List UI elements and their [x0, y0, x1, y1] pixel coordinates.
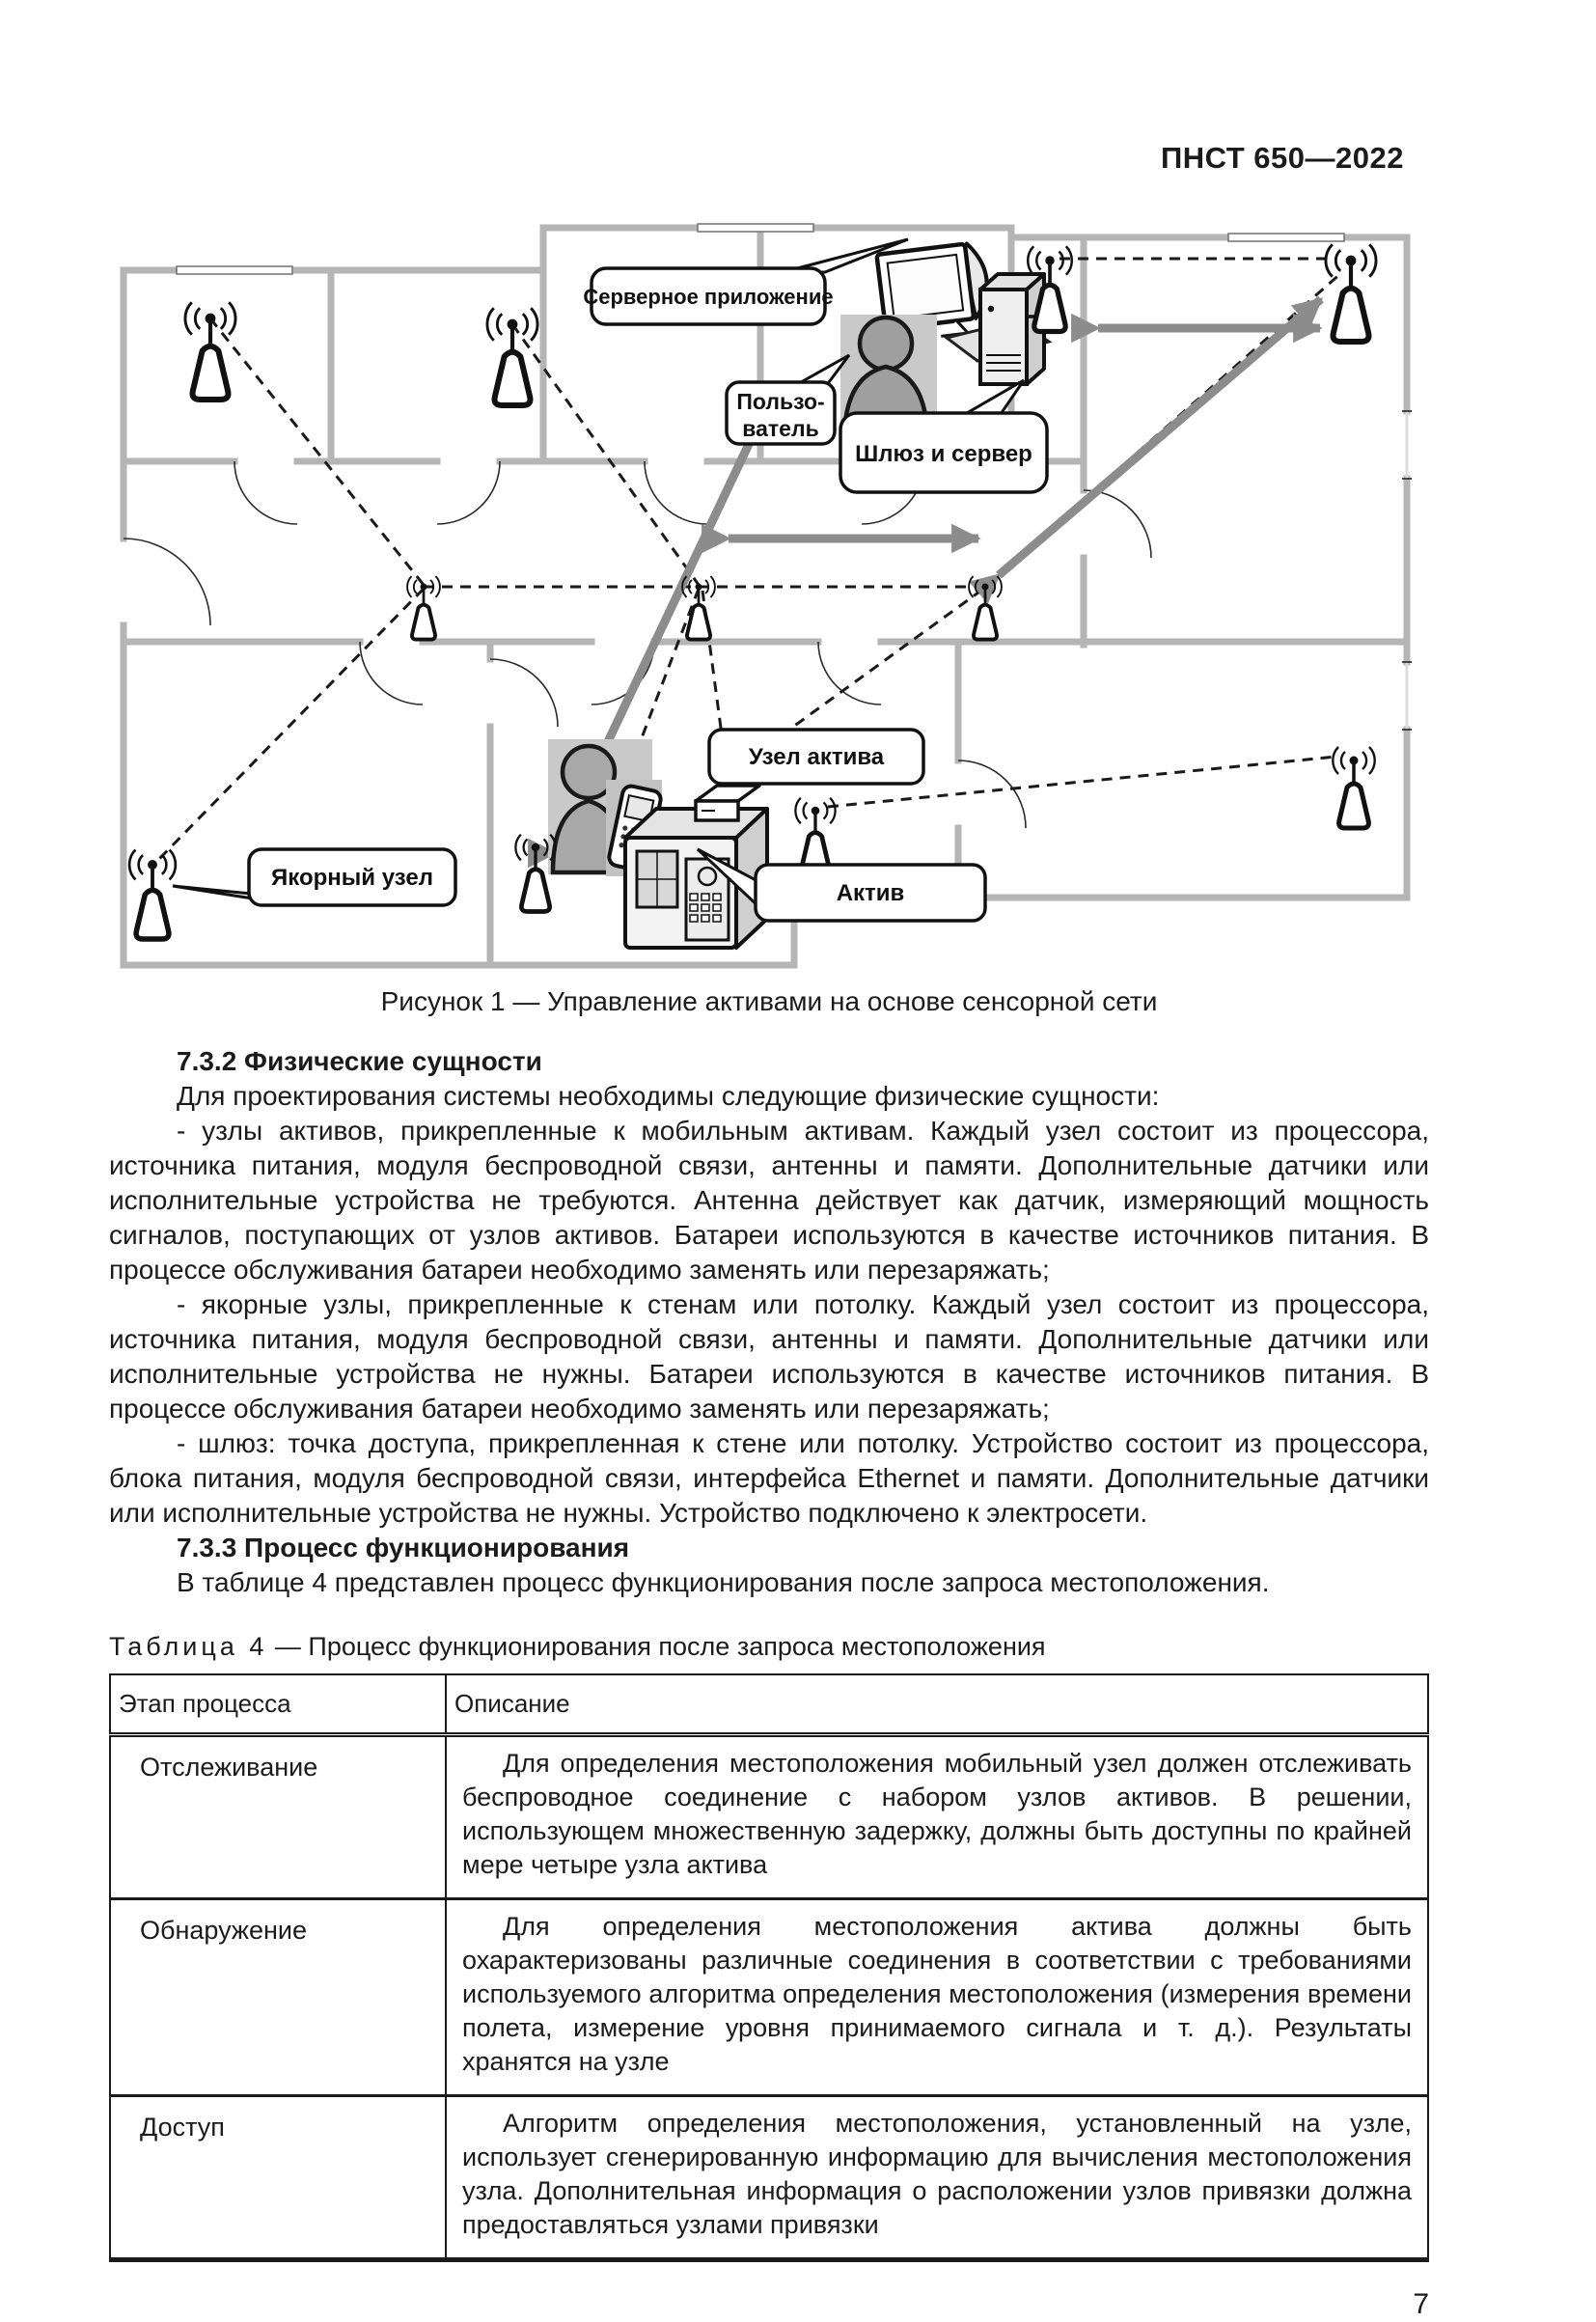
callout-label: Якорный узел: [271, 865, 433, 891]
paragraph: - шлюз: точка доступа, прикрепленная к с…: [109, 1426, 1429, 1531]
anchor-node-icon: [407, 576, 440, 640]
table-caption-label: Таблица 4: [109, 1632, 267, 1661]
table-row: Доступ Алгоритм определения местоположен…: [110, 2096, 1428, 2260]
callout-label: Узел актива: [749, 744, 885, 770]
paragraph: Для проектирования системы необходимы сл…: [109, 1079, 1429, 1114]
callout-label: ватель: [742, 416, 818, 441]
description-cell: Для определения местоположения мобильный…: [446, 1735, 1428, 1899]
page-number: 7: [109, 2287, 1429, 2322]
paragraph: - якорные узлы, прикрепленные к стенам и…: [109, 1287, 1429, 1426]
column-header-description: Описание: [446, 1674, 1428, 1735]
stage-cell: Обнаружение: [110, 1899, 446, 2096]
table-caption-text: — Процесс функционирования после запроса…: [275, 1632, 1046, 1661]
figure-sensor-network: Серверное приложение Пользо- ватель Шлюз…: [119, 220, 1412, 973]
anchor-node-icon: [487, 308, 537, 405]
callout-anchor-node: Якорный узел: [173, 849, 455, 905]
callout-server-app: Серверное приложение: [583, 239, 908, 324]
table-row: Отслеживание Для определения местоположе…: [110, 1735, 1428, 1899]
stage-cell: Доступ: [110, 2096, 446, 2260]
description-cell: Алгоритм определения местоположения, уст…: [446, 2096, 1428, 2260]
callout-label: Актив: [837, 880, 905, 906]
figure-caption: Рисунок 1 — Управление активами на основ…: [109, 986, 1429, 1017]
process-table: Этап процесса Описание Отслеживание Для …: [109, 1673, 1429, 2262]
anchor-node-icon: [129, 850, 176, 939]
callout-user: Пользо- ватель: [727, 355, 849, 444]
ranging-arrows: [555, 299, 1321, 853]
callout-label: Пользо-: [736, 389, 824, 414]
stage-cell: Отслеживание: [110, 1735, 446, 1899]
callout-label: Шлюз и сервер: [855, 441, 1032, 467]
callout-asset-node: Узел актива: [709, 730, 923, 784]
column-header-stage: Этап процесса: [110, 1674, 446, 1735]
floor-plan-diagram: Серверное приложение Пользо- ватель Шлюз…: [119, 220, 1412, 973]
document-body: 7.3.2 Физические сущности Для проектиров…: [109, 1044, 1429, 2322]
table-row: Обнаружение Для определения местоположен…: [110, 1899, 1428, 2096]
paragraph: В таблице 4 представлен процесс функцион…: [109, 1565, 1429, 1600]
callout-label: Серверное приложение: [583, 285, 833, 309]
table-header-row: Этап процесса Описание: [110, 1674, 1428, 1735]
paragraph: - узлы активов, прикрепленные к мобильны…: [109, 1114, 1429, 1287]
anchor-node-icon: [1333, 747, 1374, 828]
anchor-node-icon: [185, 302, 235, 400]
section-heading-7-3-2: 7.3.2 Физические сущности: [177, 1044, 1429, 1079]
section-heading-7-3-3: 7.3.3 Процесс функционирования: [177, 1531, 1429, 1565]
description-cell: Для определения местоположения актива до…: [446, 1899, 1428, 2096]
anchor-node-icon: [1326, 244, 1376, 342]
table-caption: Таблица 4 — Процесс функционирования пос…: [109, 1629, 1429, 1664]
document-code: ПНСТ 650—2022: [109, 141, 1404, 176]
